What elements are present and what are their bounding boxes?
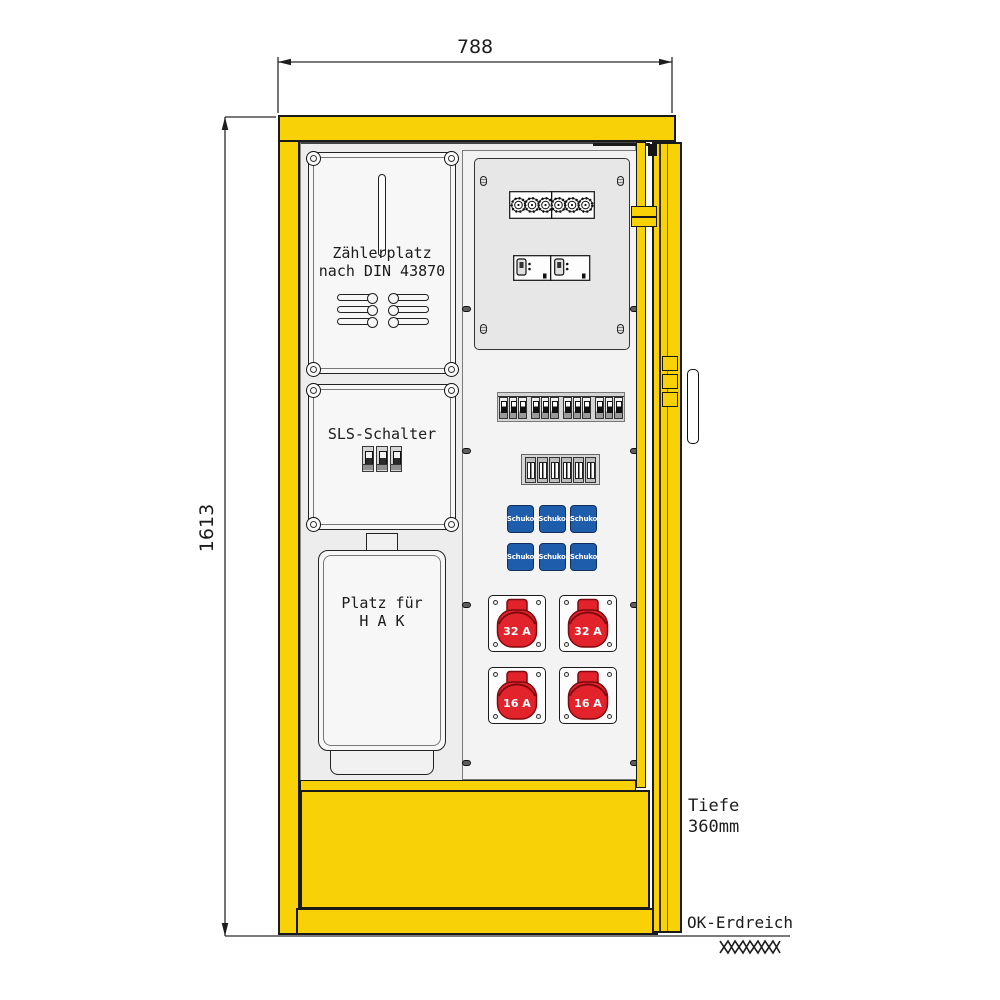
ground-hatch-zigzag: [720, 941, 780, 953]
hak-panel: [318, 550, 446, 751]
breaker: [585, 457, 596, 483]
breaker: [563, 397, 572, 419]
depth-line1: Tiefe: [688, 796, 739, 816]
sls-panel-label: SLS-Schalter: [308, 425, 456, 443]
corner-screw: [306, 151, 321, 166]
svg-text:16 A: 16 A: [574, 697, 602, 710]
cabinet-plinth-panel: [300, 790, 650, 909]
cabinet-roof: [278, 115, 676, 142]
corner-screw: [306, 362, 321, 377]
panel-screw: [480, 324, 487, 334]
vent-slot: [337, 318, 377, 325]
svg-text:32 A: 32 A: [574, 625, 602, 638]
cee-socket-16a: 16 A: [488, 667, 546, 724]
vent-slot: [389, 318, 429, 325]
hak-panel-label-line1: Platz für: [318, 594, 446, 612]
breaker: [550, 397, 559, 419]
plate-screw: [462, 448, 471, 454]
cee-socket-graphic: 16 A: [495, 670, 539, 722]
cee-socket-graphic: 32 A: [495, 598, 539, 650]
cee-socket-32a: 32 A: [559, 595, 617, 652]
door-latch: [662, 374, 678, 389]
breaker: [549, 457, 560, 483]
breaker: [582, 397, 591, 419]
schuko-socket: Schuko: [539, 543, 566, 571]
hak-panel-bottom-tab: [330, 749, 434, 775]
vent-slot: [389, 294, 429, 301]
corner-screw: [444, 383, 459, 398]
panel-screw: [617, 176, 624, 186]
cee-socket-graphic: 16 A: [566, 670, 610, 722]
corner-screw: [306, 517, 321, 532]
schuko-socket: Schuko: [507, 543, 534, 571]
sls-switch: [362, 446, 374, 472]
panel-screw: [617, 324, 624, 334]
meter-panel-label-line2: nach DIN 43870: [308, 262, 456, 280]
schuko-socket: Schuko: [539, 505, 566, 533]
breaker-row-12: [497, 392, 625, 422]
width-dimension-label: 788: [278, 36, 672, 58]
vent-slot: [389, 306, 429, 313]
vent-slot: [337, 306, 377, 313]
breaker: [573, 457, 584, 483]
hak-panel-label-line2: H A K: [318, 612, 446, 630]
sls-switch: [376, 446, 388, 472]
plate-screw: [462, 760, 471, 766]
cabinet-door-edge: [652, 142, 682, 933]
height-dimension-label: 1613: [196, 498, 218, 558]
breaker: [614, 397, 623, 419]
meter-panel-label-line1: Zählerplatz: [308, 244, 456, 262]
fuse-holder-block: [509, 191, 595, 219]
breaker: [605, 397, 614, 419]
breaker: [509, 397, 518, 419]
door-frame-strip: [636, 142, 646, 788]
breaker-row-6: [521, 454, 600, 485]
schuko-socket: Schuko: [507, 505, 534, 533]
panel-screw: [480, 176, 487, 186]
depth-annotation: Tiefe360mm: [688, 796, 739, 838]
breaker: [525, 457, 536, 483]
cee-socket-32a: 32 A: [488, 595, 546, 652]
schuko-socket: Schuko: [570, 505, 597, 533]
cabinet-left-post: [278, 140, 300, 935]
schuko-socket: Schuko: [570, 543, 597, 571]
breaker: [541, 397, 550, 419]
breaker: [573, 397, 582, 419]
svg-text:32 A: 32 A: [503, 625, 531, 638]
door-handle: [687, 369, 699, 444]
door-hinge: [631, 206, 657, 227]
breaker: [531, 397, 540, 419]
corner-screw: [444, 517, 459, 532]
breaker: [561, 457, 572, 483]
door-latch: [662, 392, 678, 407]
plate-screw: [462, 602, 471, 608]
vent-slot: [337, 294, 377, 301]
cee-socket-16a: 16 A: [559, 667, 617, 724]
door-top-bracket: [648, 144, 657, 156]
technical-drawing-canvas: Zählerplatz nach DIN 43870 SLS-Schalter …: [0, 0, 1000, 1000]
corner-screw: [306, 383, 321, 398]
breaker: [518, 397, 527, 419]
sls-switch: [390, 446, 402, 472]
cee-socket-graphic: 32 A: [566, 598, 610, 650]
breaker: [537, 457, 548, 483]
corner-screw: [444, 362, 459, 377]
breaker: [595, 397, 604, 419]
corner-screw: [444, 151, 459, 166]
fuse-sub-panel: [474, 158, 630, 350]
depth-line2: 360mm: [688, 817, 739, 837]
cabinet-base-strip: [296, 908, 658, 935]
plate-screw: [462, 306, 471, 312]
door-latch: [662, 356, 678, 371]
meter-module-block: [513, 255, 591, 281]
breaker: [499, 397, 508, 419]
svg-text:16 A: 16 A: [503, 697, 531, 710]
ground-level-label: OK-Erdreich: [685, 914, 795, 932]
